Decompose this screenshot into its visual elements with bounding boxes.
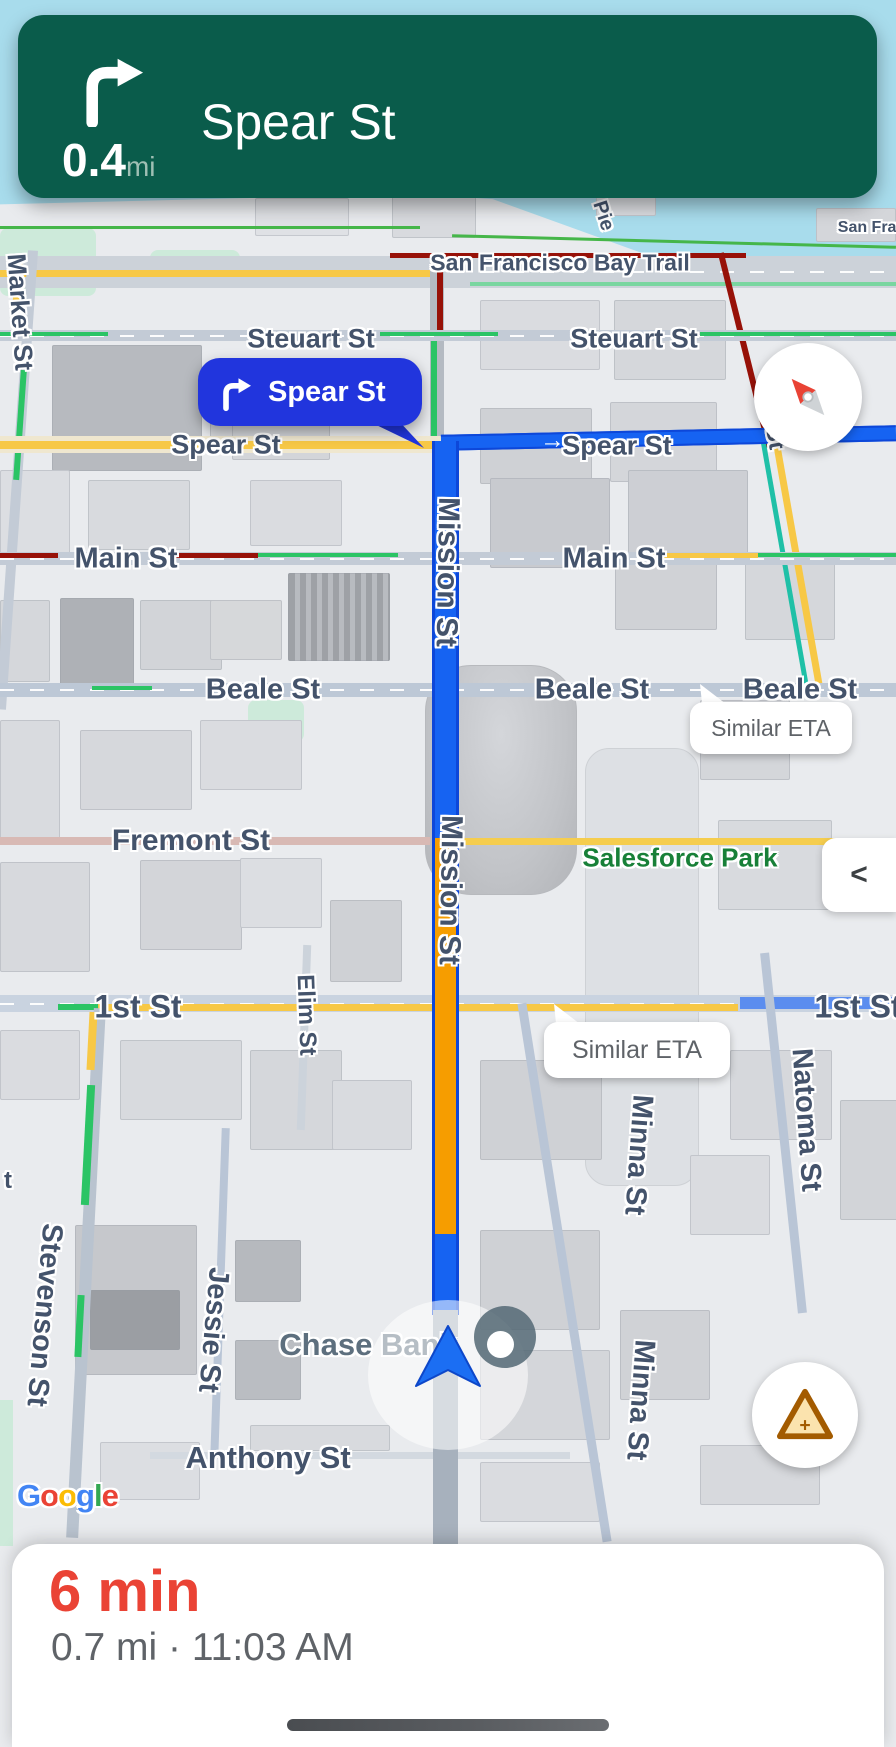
park-strip [0,1400,13,1546]
banner-distance: 0.4mi [62,133,156,187]
trip-details: 0.7 mi · 11:03 AM [51,1626,354,1670]
road [92,686,152,690]
street-label: Minna St [619,1339,660,1462]
road [431,340,437,444]
road [170,553,258,558]
building [240,858,322,928]
street-label: Spear St [562,431,672,462]
road [0,553,58,558]
street-label: 1st St [814,989,896,1026]
google-logo-letter: o [58,1478,76,1513]
street-label: t [4,1167,12,1195]
building [60,598,134,694]
trip-eta: 6 min [49,1558,201,1625]
road [0,270,430,277]
street-label: San Fran [838,219,896,237]
google-logo-letter: G [17,1478,40,1513]
compass-button[interactable] [754,343,862,451]
building [288,573,390,661]
map-canvas[interactable]: → San Francisco Bay TrailSan FranPieMark… [0,0,896,1747]
collapse-panel-button[interactable]: < [822,838,896,912]
building [330,900,402,982]
google-logo-letter: o [40,1478,58,1513]
road [470,282,896,286]
street-label: Steuart St [570,324,698,355]
street-label: Anthony St [185,1440,350,1476]
turn-right-icon [76,53,150,127]
road [0,226,420,229]
trip-summary-panel[interactable]: 6 min 0.7 mi · 11:03 AM [12,1544,884,1747]
building [840,1100,896,1220]
banner-distance-unit: mi [126,151,156,182]
road [258,553,398,557]
building [200,720,302,790]
building [88,480,190,550]
home-indicator[interactable] [287,1719,609,1731]
report-incident-button[interactable]: + [752,1362,858,1468]
building [332,1080,412,1150]
building [120,1040,242,1120]
similar-eta-bubble[interactable]: Similar ETA [690,702,852,754]
google-logo-letter: l [94,1478,102,1513]
building [80,730,192,810]
google-logo-letter: g [76,1478,94,1513]
building [480,1462,600,1522]
building [690,1155,770,1235]
street-label: Beale St [206,674,320,707]
street-label: Elim St [291,974,322,1056]
similar-eta-bubble[interactable]: Similar ETA [544,1022,730,1078]
warning-triangle-icon: + [774,1386,836,1444]
road [98,1004,738,1011]
collapse-chevron-icon: < [850,858,868,892]
building [0,720,60,840]
turn-callout-label: Spear St [268,376,386,409]
road [758,553,896,557]
street-label: Spear St [171,430,281,461]
street-label: Stevenson St [20,1222,69,1408]
location-beam-dot [487,1331,514,1358]
street-label: Main St [562,543,665,576]
compass-icon [766,355,851,440]
street-label: Steuart St [247,324,375,355]
street-label: San Francisco Bay Trail [430,250,690,277]
street-label: Jessie St [191,1266,235,1394]
street-label: Mission St [429,497,466,648]
street-label: Fremont St [112,824,270,858]
street-label: Beale St [535,674,649,707]
road [380,332,498,336]
navigation-arrow-icon [408,1320,488,1398]
road [700,332,896,336]
street-label: Mission St [432,815,469,966]
building [255,198,349,236]
building [392,192,476,238]
svg-text:+: + [799,1415,810,1436]
google-watermark: Google [17,1478,118,1514]
building [235,1240,301,1302]
building [140,860,242,950]
navigation-banner[interactable]: 0.4mi Spear St [18,15,877,198]
road [58,1004,98,1010]
building [0,862,90,972]
building [210,600,282,660]
street-label: Salesforce Park [582,843,777,874]
banner-street: Spear St [201,93,396,151]
building [250,480,342,546]
turn-right-icon [216,372,256,412]
building [90,1290,180,1350]
street-label: 1st St [94,989,181,1026]
building [250,1050,342,1150]
turn-callout[interactable]: Spear St [198,358,422,426]
google-logo-letter: e [102,1478,118,1513]
street-label: Main St [74,543,177,576]
street-label: Minna St [617,1094,658,1217]
building [0,1030,80,1100]
